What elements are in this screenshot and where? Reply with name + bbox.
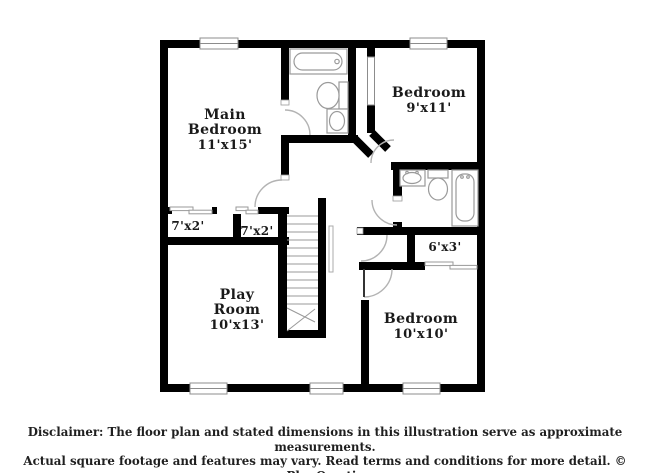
wall-segment xyxy=(212,207,217,214)
bathtub-faucet xyxy=(335,59,339,63)
hall-bathroom-fixtures xyxy=(400,170,478,226)
disclaimer-text: Disclaimer: The floor plan and stated di… xyxy=(0,425,650,473)
door-arc-main-bath xyxy=(285,110,310,135)
door-jamb xyxy=(357,228,363,234)
door-arc-hall-bath xyxy=(372,200,397,225)
door-jamb xyxy=(281,100,289,105)
room-label-play-room: Play xyxy=(220,287,255,303)
room-label-play-room: Room xyxy=(214,302,261,318)
disclaimer-line-1: Disclaimer: The floor plan and stated di… xyxy=(0,425,650,454)
floor-plan-canvas: Main Bedroom 11'x15' Bedroom 9'x11' 7'x2… xyxy=(0,0,650,473)
sliding-door-panel xyxy=(425,262,453,266)
room-dims-bedroom-10x10: 10'x10' xyxy=(394,327,449,342)
wall-segment xyxy=(160,237,289,245)
room-label-bedroom-10x10: Bedroom xyxy=(384,311,458,327)
toilet-tank xyxy=(339,82,348,109)
room-label-bedroom-9x11: Bedroom xyxy=(392,85,466,101)
sink-basin xyxy=(330,112,345,131)
wall-segment xyxy=(391,162,485,170)
sink-faucet xyxy=(406,171,408,173)
wall-segment xyxy=(359,262,425,270)
sink-faucet xyxy=(416,171,418,173)
door-arc-main-bedroom xyxy=(255,180,282,207)
bathtub-faucet xyxy=(461,176,464,179)
closet-dims-left: 7'x2' xyxy=(171,219,204,233)
wall-segment xyxy=(278,330,326,338)
wall-diagonal xyxy=(355,139,371,155)
door-jamb xyxy=(393,196,402,201)
room-dims-main-bedroom: 11'x15' xyxy=(198,138,253,153)
sliding-door-panel xyxy=(246,210,258,214)
pocket-door xyxy=(368,57,375,105)
wall-segment xyxy=(281,143,289,175)
floorplan-svg: Main Bedroom 11'x15' Bedroom 9'x11' 7'x2… xyxy=(0,0,650,473)
room-dims-bedroom-9x11: 9'x11' xyxy=(406,101,451,116)
wall-segment xyxy=(361,300,369,384)
closet-dims-mid: 7'x2' xyxy=(240,224,273,238)
wall-segment xyxy=(357,227,485,235)
main-bathroom-fixtures xyxy=(290,49,348,133)
door-arc-hall xyxy=(361,235,387,261)
sliding-door-panel xyxy=(450,265,477,269)
door-jamb xyxy=(281,175,289,180)
wall-segment xyxy=(281,48,289,100)
toilet-bowl xyxy=(317,83,339,109)
closet-dims-hall: 6'x3' xyxy=(428,240,461,254)
wall-segment xyxy=(367,48,375,57)
bathtub-basin xyxy=(456,174,474,221)
wall-segment xyxy=(278,207,287,338)
wall-segment xyxy=(367,105,375,133)
wall-segment xyxy=(348,48,356,135)
wall-segment xyxy=(318,198,326,338)
toilet-tank xyxy=(428,170,448,178)
toilet-bowl xyxy=(429,178,448,200)
door-arc-bedroom-10x10 xyxy=(364,269,392,297)
wall-segment xyxy=(281,135,358,143)
room-label-main-bedroom: Bedroom xyxy=(188,122,262,138)
room-label-main-bedroom: Main xyxy=(204,107,246,123)
room-dims-play-room: 10'x13' xyxy=(210,318,265,333)
floor-plan-page: Main Bedroom 11'x15' Bedroom 9'x11' 7'x2… xyxy=(0,0,650,473)
disclaimer-line-2: Actual square footage and features may v… xyxy=(0,454,650,473)
sliding-door-panel xyxy=(189,210,212,214)
stair-railing xyxy=(329,226,333,272)
door-arc-bedroom-9x11 xyxy=(371,140,394,163)
bathtub-faucet xyxy=(467,176,470,179)
staircase xyxy=(287,216,333,331)
wall-outer-left xyxy=(160,40,168,392)
sink-basin xyxy=(403,173,421,184)
